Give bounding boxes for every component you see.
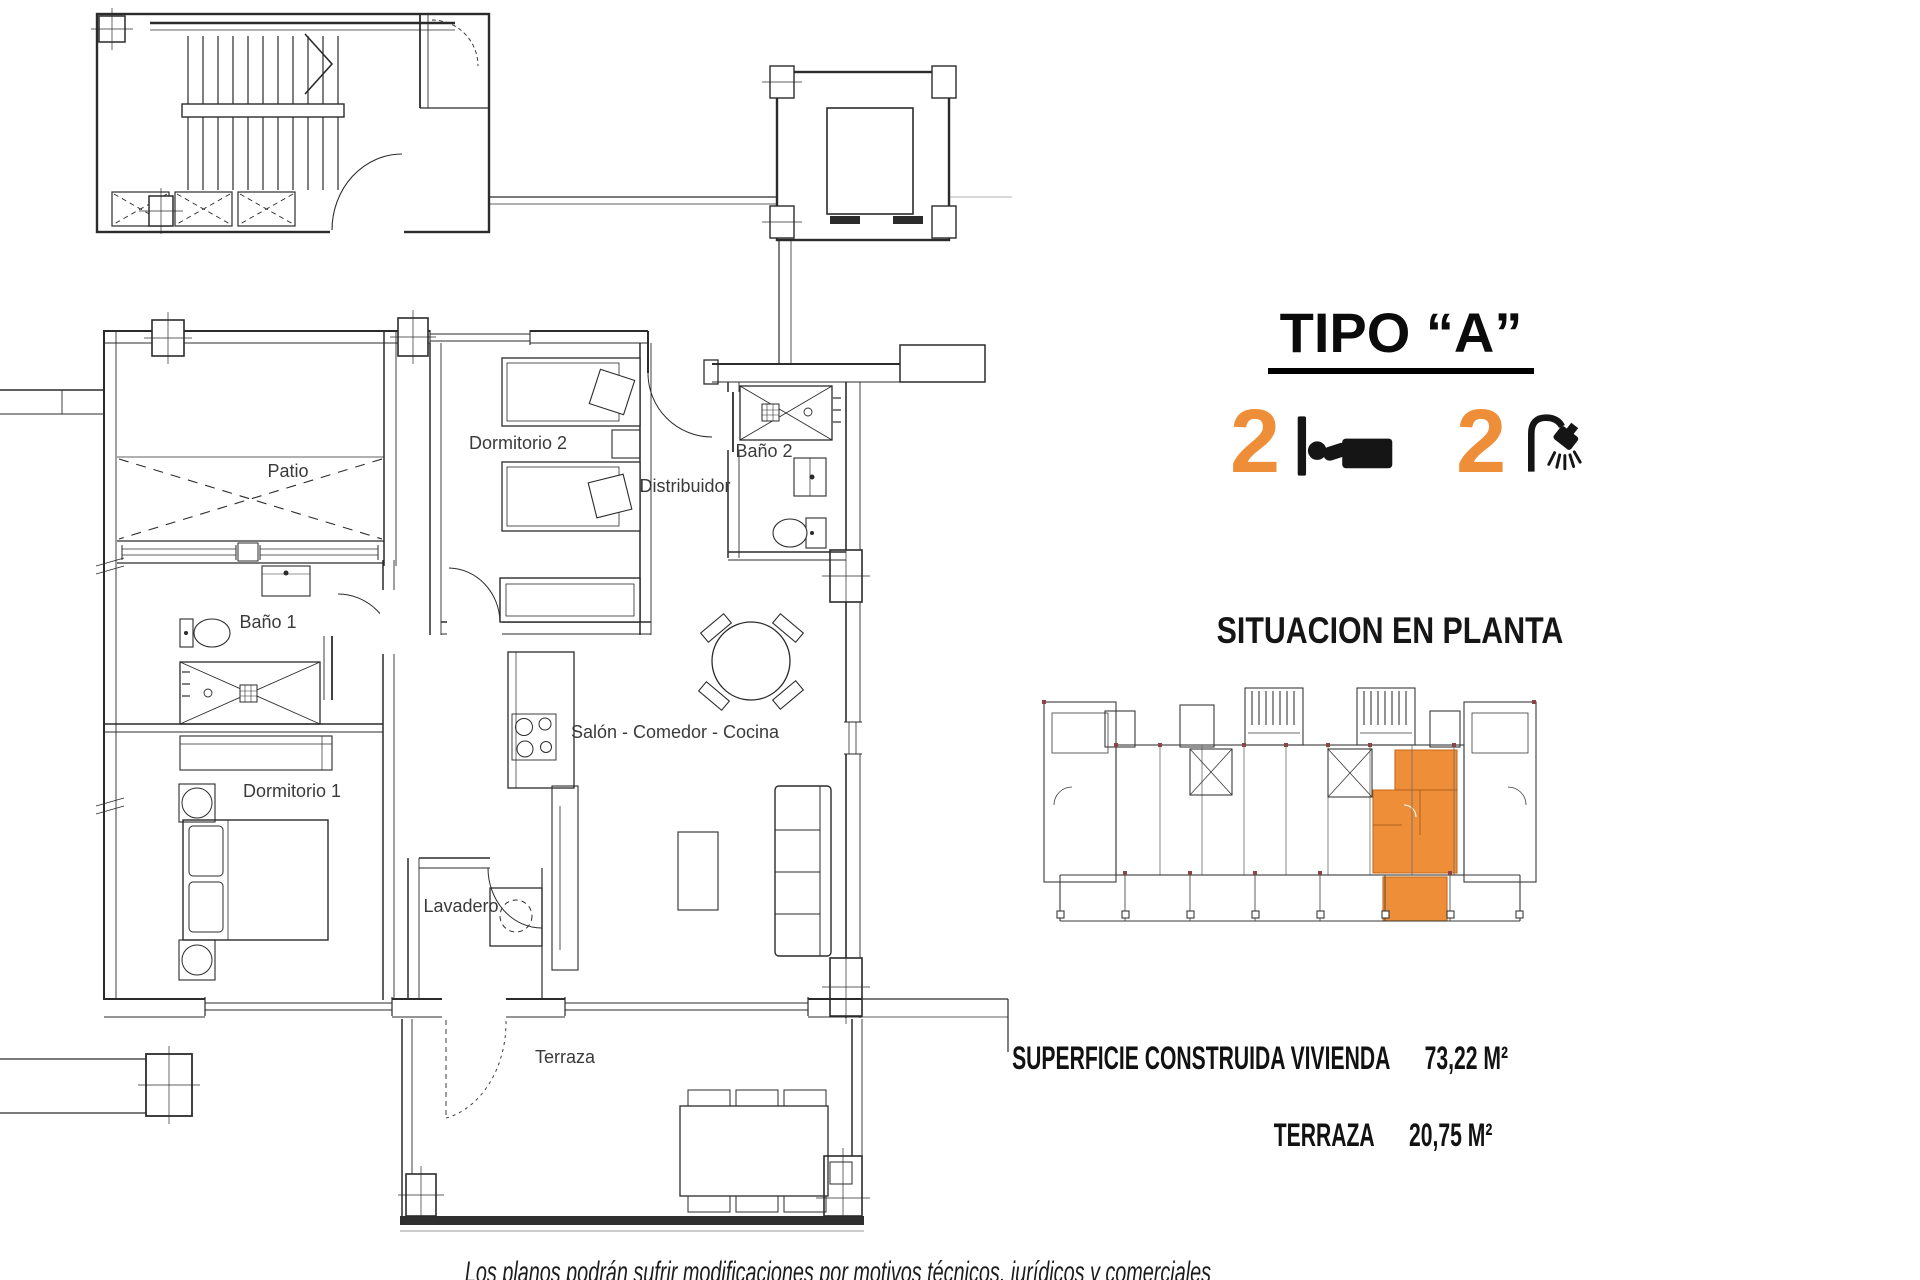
area-row-terraza: TERRAZA 20,75 M² — [1138, 1117, 1508, 1154]
room-label-lavadero: Lavadero — [423, 896, 498, 916]
stairwell — [91, 8, 489, 236]
disclaimer-text: Los planos podrán sufrir modificaciones … — [465, 1256, 1105, 1280]
room-label-dormitorio1: Dormitorio 1 — [243, 781, 341, 801]
terrace — [398, 1019, 870, 1231]
unit-specs: 2 2 — [1230, 402, 1586, 480]
floorplan-sheet: Patio Dormitorio 2 Distribuidor Baño 2 B… — [0, 0, 1920, 1280]
bathrooms-count: 2 — [1456, 406, 1506, 480]
situation-heading: SITUACION EN PLANTA — [1193, 610, 1587, 652]
room-label-dormitorio2: Dormitorio 2 — [469, 433, 567, 453]
situation-plan — [1030, 665, 1550, 935]
living-dining-furniture — [552, 614, 831, 970]
laundry — [408, 858, 542, 1000]
room-label-bano2: Baño 2 — [735, 441, 792, 461]
shower-icon — [1524, 402, 1586, 480]
bedroom2 — [430, 343, 651, 638]
main-floor-plan: Patio Dormitorio 2 Distribuidor Baño 2 B… — [0, 0, 1020, 1280]
highlighted-unit — [1373, 750, 1457, 921]
room-label-distribuidor: Distribuidor — [639, 476, 730, 496]
room-label-bano1: Baño 1 — [239, 612, 296, 632]
patio — [117, 331, 396, 566]
page-title: TIPO “A” — [1268, 300, 1534, 374]
area-value-vivienda: 73,22 M² — [1425, 1040, 1508, 1077]
room-label-salon: Salón - Comedor - Cocina — [571, 722, 780, 742]
area-value-terraza: 20,75 M² — [1409, 1117, 1508, 1154]
stair-core-right — [1357, 688, 1415, 745]
elevator — [762, 66, 956, 240]
area-label-terraza: TERRAZA — [1274, 1117, 1375, 1154]
area-row-vivienda: SUPERFICIE CONSTRUIDA VIVIENDA 73,22 M² — [1138, 1040, 1508, 1077]
stair-core-left — [1245, 688, 1303, 745]
room-label-patio: Patio — [267, 461, 308, 481]
bathroom1 — [180, 566, 394, 724]
bathroom2 — [725, 382, 846, 560]
kitchen-island — [508, 652, 574, 788]
terrace-row — [1057, 875, 1523, 921]
area-label-vivienda: SUPERFICIE CONSTRUIDA VIVIENDA — [1012, 1040, 1390, 1077]
areas-table: SUPERFICIE CONSTRUIDA VIVIENDA 73,22 M² … — [948, 1040, 1508, 1154]
room-label-terraza: Terraza — [535, 1047, 596, 1067]
bed-icon — [1294, 412, 1396, 480]
bedrooms-count: 2 — [1230, 406, 1280, 480]
